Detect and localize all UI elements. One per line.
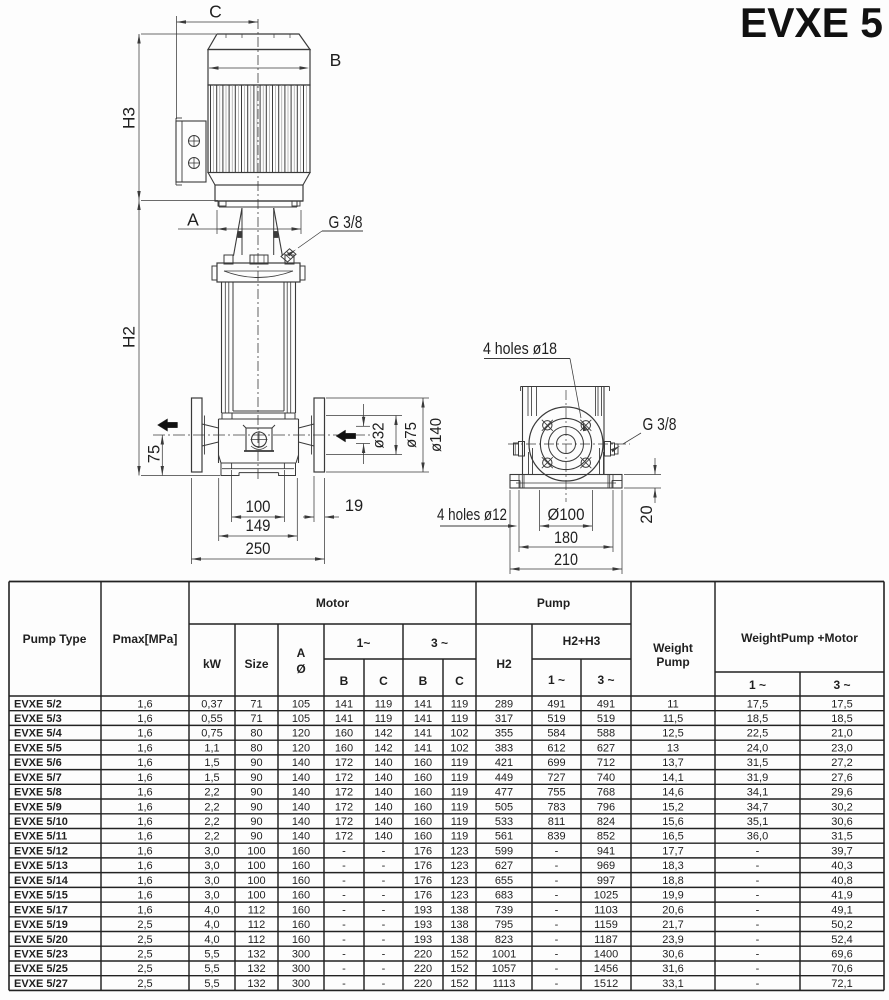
svg-text:160: 160 [335, 728, 353, 740]
svg-text:100: 100 [247, 890, 265, 902]
svg-text:289: 289 [495, 698, 513, 710]
svg-text:138: 138 [450, 919, 468, 931]
svg-text:141: 141 [414, 698, 432, 710]
svg-text:627: 627 [597, 742, 615, 754]
svg-text:16,5: 16,5 [662, 831, 683, 843]
svg-text:23,9: 23,9 [662, 934, 683, 946]
svg-text:383: 383 [495, 742, 513, 754]
svg-text:18,5: 18,5 [831, 713, 852, 725]
svg-text:969: 969 [597, 860, 615, 872]
svg-text:160: 160 [414, 757, 432, 769]
svg-text:132: 132 [247, 978, 265, 990]
svg-text:3,0: 3,0 [204, 875, 219, 887]
svg-text:30,2: 30,2 [831, 801, 852, 813]
svg-text:-: - [342, 875, 346, 887]
svg-text:-: - [756, 934, 760, 946]
svg-text:EVXE 5/4: EVXE 5/4 [14, 728, 63, 740]
svg-text:132: 132 [247, 963, 265, 975]
svg-text:80: 80 [250, 742, 262, 754]
svg-text:3 ~: 3 ~ [833, 678, 850, 692]
svg-text:1103: 1103 [594, 904, 618, 916]
svg-text:ø32: ø32 [371, 422, 388, 448]
svg-text:1,6: 1,6 [137, 742, 152, 754]
svg-text:-: - [382, 904, 386, 916]
svg-text:EVXE 5/7: EVXE 5/7 [14, 772, 62, 784]
svg-text:17,5: 17,5 [831, 698, 852, 710]
svg-text:141: 141 [335, 713, 353, 725]
svg-text:18,8: 18,8 [662, 875, 683, 887]
svg-text:WeightPump +Motor: WeightPump +Motor [741, 631, 858, 645]
svg-text:176: 176 [414, 846, 432, 858]
svg-text:-: - [555, 963, 559, 975]
svg-text:-: - [342, 904, 346, 916]
svg-text:220: 220 [414, 963, 432, 975]
svg-text:533: 533 [495, 816, 513, 828]
svg-text:0,55: 0,55 [201, 713, 222, 725]
svg-text:Ø100: Ø100 [548, 506, 585, 524]
svg-text:69,6: 69,6 [831, 949, 852, 961]
svg-text:-: - [756, 963, 760, 975]
svg-text:90: 90 [250, 831, 262, 843]
svg-text:477: 477 [495, 787, 513, 799]
svg-text:123: 123 [450, 875, 468, 887]
svg-text:-: - [342, 934, 346, 946]
svg-text:4,0: 4,0 [204, 919, 219, 931]
svg-text:71: 71 [250, 713, 262, 725]
svg-text:EVXE 5/19: EVXE 5/19 [14, 919, 68, 931]
svg-text:EVXE 5/25: EVXE 5/25 [14, 963, 68, 975]
svg-text:160: 160 [335, 742, 353, 754]
svg-text:123: 123 [450, 846, 468, 858]
svg-text:90: 90 [250, 816, 262, 828]
svg-text:2,5: 2,5 [137, 934, 152, 946]
svg-text:1113: 1113 [493, 978, 516, 990]
svg-text:123: 123 [450, 860, 468, 872]
svg-text:13,7: 13,7 [662, 757, 683, 769]
svg-text:1,6: 1,6 [137, 787, 152, 799]
svg-text:52,4: 52,4 [831, 934, 852, 946]
svg-text:1,6: 1,6 [137, 860, 152, 872]
svg-text:-: - [555, 949, 559, 961]
svg-text:40,8: 40,8 [831, 875, 852, 887]
svg-text:180: 180 [554, 529, 578, 547]
svg-text:141: 141 [335, 698, 353, 710]
svg-text:EVXE 5: EVXE 5 [740, 0, 883, 46]
svg-text:-: - [382, 860, 386, 872]
svg-text:31,9: 31,9 [747, 772, 768, 784]
svg-text:11,5: 11,5 [663, 713, 684, 725]
svg-text:29,6: 29,6 [831, 787, 852, 799]
svg-text:1,6: 1,6 [137, 904, 152, 916]
svg-text:EVXE 5/23: EVXE 5/23 [14, 949, 68, 961]
svg-text:584: 584 [547, 728, 565, 740]
svg-text:ø140: ø140 [428, 418, 445, 452]
svg-text:-: - [555, 860, 559, 872]
svg-text:30,6: 30,6 [662, 949, 683, 961]
svg-text:783: 783 [547, 801, 565, 813]
svg-text:21,0: 21,0 [831, 728, 852, 740]
svg-text:1,6: 1,6 [137, 890, 152, 902]
svg-text:21,7: 21,7 [662, 919, 683, 931]
svg-text:160: 160 [292, 890, 310, 902]
svg-text:Pmax[MPa]: Pmax[MPa] [113, 632, 178, 646]
svg-text:160: 160 [414, 801, 432, 813]
svg-text:EVXE 5/5: EVXE 5/5 [14, 742, 62, 754]
svg-text:141: 141 [414, 728, 432, 740]
svg-text:739: 739 [495, 904, 513, 916]
svg-text:-: - [555, 919, 559, 931]
svg-text:1400: 1400 [594, 949, 618, 961]
svg-text:-: - [756, 890, 760, 902]
svg-text:B: B [340, 674, 349, 688]
svg-text:210: 210 [554, 551, 578, 569]
svg-text:3 ~: 3 ~ [431, 636, 448, 650]
svg-text:22,5: 22,5 [747, 728, 768, 740]
svg-text:11: 11 [667, 698, 678, 710]
svg-text:-: - [555, 875, 559, 887]
svg-text:141: 141 [414, 742, 432, 754]
svg-text:1187: 1187 [594, 934, 618, 946]
svg-text:4 holes ø12: 4 holes ø12 [437, 506, 507, 524]
svg-text:-: - [555, 978, 559, 990]
svg-text:Weight: Weight [653, 641, 693, 655]
svg-text:1057: 1057 [492, 963, 516, 975]
svg-text:A: A [297, 646, 306, 660]
svg-text:EVXE 5/6: EVXE 5/6 [14, 757, 62, 769]
svg-text:14,1: 14,1 [662, 772, 683, 784]
svg-text:100: 100 [246, 498, 271, 516]
svg-text:142: 142 [374, 742, 392, 754]
svg-text:120: 120 [292, 742, 310, 754]
svg-text:75: 75 [146, 445, 164, 463]
svg-text:5,5: 5,5 [204, 963, 219, 975]
svg-text:EVXE 5/11: EVXE 5/11 [14, 831, 67, 843]
svg-text:300: 300 [292, 949, 310, 961]
svg-text:140: 140 [292, 816, 310, 828]
svg-text:Pump: Pump [537, 596, 570, 610]
svg-text:-: - [342, 890, 346, 902]
svg-text:-: - [342, 963, 346, 975]
svg-text:160: 160 [292, 934, 310, 946]
svg-text:152: 152 [450, 949, 468, 961]
svg-text:112: 112 [248, 934, 266, 946]
svg-text:EVXE 5/12: EVXE 5/12 [14, 846, 68, 858]
svg-text:Ø: Ø [296, 662, 305, 676]
svg-text:-: - [382, 978, 386, 990]
svg-text:250: 250 [246, 540, 271, 558]
svg-text:3,0: 3,0 [204, 890, 219, 902]
svg-text:71: 71 [250, 698, 262, 710]
svg-text:0,75: 0,75 [201, 728, 222, 740]
svg-text:119: 119 [451, 801, 469, 813]
svg-text:140: 140 [374, 787, 392, 799]
svg-text:B: B [330, 50, 342, 70]
svg-text:683: 683 [495, 890, 513, 902]
svg-text:997: 997 [597, 875, 615, 887]
svg-text:EVXE 5/13: EVXE 5/13 [14, 860, 68, 872]
svg-text:138: 138 [450, 904, 468, 916]
svg-text:449: 449 [495, 772, 513, 784]
svg-text:193: 193 [414, 919, 432, 931]
svg-text:100: 100 [247, 860, 265, 872]
svg-text:1,6: 1,6 [137, 801, 152, 813]
svg-text:2,5: 2,5 [137, 949, 152, 961]
svg-text:1001: 1001 [492, 949, 516, 961]
svg-text:3,0: 3,0 [204, 860, 219, 872]
svg-text:220: 220 [414, 978, 432, 990]
svg-text:712: 712 [597, 757, 615, 769]
svg-text:2,2: 2,2 [204, 816, 219, 828]
svg-text:-: - [342, 846, 346, 858]
svg-text:140: 140 [374, 801, 392, 813]
svg-text:1,6: 1,6 [137, 713, 152, 725]
svg-text:300: 300 [292, 963, 310, 975]
svg-text:491: 491 [547, 698, 565, 710]
svg-text:Pump: Pump [656, 655, 689, 669]
svg-text:140: 140 [292, 757, 310, 769]
svg-text:C: C [379, 674, 388, 688]
svg-text:140: 140 [374, 831, 392, 843]
svg-text:15,6: 15,6 [662, 816, 683, 828]
svg-text:5,5: 5,5 [204, 949, 219, 961]
svg-text:193: 193 [414, 904, 432, 916]
svg-text:519: 519 [597, 713, 615, 725]
svg-text:941: 941 [597, 846, 615, 858]
svg-text:172: 172 [335, 816, 353, 828]
svg-text:12,5: 12,5 [662, 728, 683, 740]
svg-text:34,1: 34,1 [747, 787, 768, 799]
svg-text:39,7: 39,7 [831, 846, 852, 858]
svg-text:-: - [382, 875, 386, 887]
svg-text:80: 80 [250, 728, 262, 740]
svg-text:EVXE 5/8: EVXE 5/8 [14, 787, 62, 799]
svg-text:-: - [756, 949, 760, 961]
svg-text:-: - [382, 919, 386, 931]
svg-text:-: - [382, 846, 386, 858]
svg-text:36,0: 36,0 [747, 831, 768, 843]
svg-text:421: 421 [495, 757, 513, 769]
svg-text:1,6: 1,6 [137, 846, 152, 858]
svg-text:0,37: 0,37 [201, 698, 222, 710]
svg-text:1,6: 1,6 [137, 757, 152, 769]
svg-text:27,6: 27,6 [831, 772, 852, 784]
svg-text:300: 300 [292, 978, 310, 990]
svg-text:17,5: 17,5 [747, 698, 768, 710]
svg-text:149: 149 [246, 517, 271, 535]
svg-text:4,0: 4,0 [204, 904, 219, 916]
svg-text:EVXE 5/14: EVXE 5/14 [14, 875, 69, 887]
svg-text:141: 141 [414, 713, 432, 725]
svg-text:kW: kW [203, 657, 222, 671]
svg-text:41,9: 41,9 [831, 890, 852, 902]
svg-text:34,7: 34,7 [747, 801, 768, 813]
svg-text:160: 160 [414, 831, 432, 843]
svg-text:18,3: 18,3 [662, 860, 683, 872]
svg-text:119: 119 [451, 816, 469, 828]
svg-text:20,6: 20,6 [662, 904, 683, 916]
svg-text:EVXE 5/9: EVXE 5/9 [14, 801, 62, 813]
svg-text:27,2: 27,2 [831, 757, 852, 769]
svg-text:-: - [756, 978, 760, 990]
svg-text:1,5: 1,5 [204, 757, 219, 769]
svg-text:19: 19 [345, 497, 363, 515]
svg-text:-: - [756, 846, 760, 858]
svg-text:699: 699 [547, 757, 565, 769]
svg-text:90: 90 [250, 757, 262, 769]
svg-text:-: - [342, 949, 346, 961]
svg-text:-: - [756, 919, 760, 931]
svg-text:796: 796 [597, 801, 615, 813]
svg-text:3,0: 3,0 [204, 846, 219, 858]
svg-text:727: 727 [547, 772, 565, 784]
svg-text:B: B [419, 674, 428, 688]
svg-text:1025: 1025 [594, 890, 618, 902]
svg-text:EVXE 5/3: EVXE 5/3 [14, 713, 62, 725]
svg-text:140: 140 [292, 772, 310, 784]
svg-text:-: - [382, 963, 386, 975]
svg-text:5,5: 5,5 [204, 978, 219, 990]
svg-text:119: 119 [451, 787, 469, 799]
svg-text:160: 160 [292, 919, 310, 931]
svg-text:40,3: 40,3 [831, 860, 852, 872]
svg-text:-: - [555, 846, 559, 858]
svg-text:755: 755 [547, 787, 565, 799]
svg-text:100: 100 [247, 846, 265, 858]
svg-text:70,6: 70,6 [831, 963, 852, 975]
svg-text:2,2: 2,2 [204, 801, 219, 813]
svg-text:612: 612 [547, 742, 565, 754]
svg-text:491: 491 [597, 698, 615, 710]
svg-text:1,6: 1,6 [137, 728, 152, 740]
svg-text:2,2: 2,2 [204, 787, 219, 799]
svg-text:33,1: 33,1 [662, 978, 683, 990]
svg-text:172: 172 [335, 831, 353, 843]
svg-text:-: - [342, 978, 346, 990]
svg-text:1,6: 1,6 [137, 831, 152, 843]
svg-text:119: 119 [451, 831, 469, 843]
svg-text:EVXE 5/27: EVXE 5/27 [14, 978, 68, 990]
svg-text:EVXE 5/2: EVXE 5/2 [14, 698, 62, 710]
svg-text:105: 105 [292, 698, 310, 710]
svg-text:599: 599 [495, 846, 513, 858]
svg-text:119: 119 [375, 713, 393, 725]
svg-text:1 ~: 1 ~ [749, 678, 766, 692]
svg-text:176: 176 [414, 875, 432, 887]
svg-text:220: 220 [414, 949, 432, 961]
svg-text:140: 140 [292, 801, 310, 813]
svg-text:132: 132 [247, 949, 265, 961]
svg-text:655: 655 [495, 875, 513, 887]
svg-text:839: 839 [547, 831, 565, 843]
svg-text:H3: H3 [120, 107, 139, 129]
svg-text:105: 105 [292, 713, 310, 725]
svg-text:140: 140 [374, 757, 392, 769]
svg-text:19,9: 19,9 [662, 890, 683, 902]
svg-text:1512: 1512 [594, 978, 618, 990]
svg-text:1,6: 1,6 [137, 772, 152, 784]
svg-text:140: 140 [292, 787, 310, 799]
svg-text:G 3/8: G 3/8 [329, 212, 363, 232]
svg-text:120: 120 [292, 728, 310, 740]
svg-text:119: 119 [451, 757, 469, 769]
svg-text:Size: Size [244, 657, 268, 671]
svg-text:172: 172 [335, 787, 353, 799]
svg-text:90: 90 [250, 787, 262, 799]
svg-text:EVXE 5/10: EVXE 5/10 [14, 816, 68, 828]
svg-text:EVXE 5/17: EVXE 5/17 [14, 904, 68, 916]
svg-text:588: 588 [597, 728, 615, 740]
svg-text:160: 160 [414, 772, 432, 784]
svg-text:140: 140 [374, 816, 392, 828]
svg-text:2,2: 2,2 [204, 831, 219, 843]
svg-text:H2+H3: H2+H3 [563, 634, 601, 648]
svg-text:519: 519 [547, 713, 565, 725]
svg-text:C: C [209, 2, 222, 22]
svg-text:172: 172 [335, 801, 353, 813]
svg-text:C: C [455, 674, 464, 688]
svg-text:-: - [382, 949, 386, 961]
svg-text:1159: 1159 [594, 919, 618, 931]
svg-text:152: 152 [450, 963, 468, 975]
svg-text:49,1: 49,1 [831, 904, 852, 916]
svg-text:23,0: 23,0 [831, 742, 852, 754]
svg-text:-: - [555, 904, 559, 916]
svg-text:1~: 1~ [357, 636, 371, 650]
svg-text:50,2: 50,2 [831, 919, 852, 931]
svg-text:119: 119 [451, 772, 469, 784]
svg-text:20: 20 [638, 505, 656, 523]
svg-text:193: 193 [414, 934, 432, 946]
svg-text:768: 768 [597, 787, 615, 799]
svg-text:102: 102 [450, 742, 468, 754]
svg-text:852: 852 [597, 831, 615, 843]
svg-text:24,0: 24,0 [747, 742, 768, 754]
svg-text:561: 561 [495, 831, 513, 843]
svg-text:90: 90 [250, 772, 262, 784]
svg-text:-: - [382, 934, 386, 946]
svg-text:1,6: 1,6 [137, 816, 152, 828]
svg-text:ø75: ø75 [403, 422, 420, 448]
svg-text:H2: H2 [120, 326, 139, 348]
svg-text:-: - [756, 860, 760, 872]
svg-text:1 ~: 1 ~ [548, 673, 565, 687]
svg-text:EVXE 5/20: EVXE 5/20 [14, 934, 68, 946]
svg-text:17,7: 17,7 [662, 846, 683, 858]
svg-text:4,0: 4,0 [204, 934, 219, 946]
svg-text:119: 119 [451, 698, 469, 710]
svg-text:795: 795 [495, 919, 513, 931]
svg-text:505: 505 [495, 801, 513, 813]
svg-text:90: 90 [250, 801, 262, 813]
svg-text:172: 172 [335, 772, 353, 784]
svg-text:1,6: 1,6 [137, 875, 152, 887]
svg-text:31,5: 31,5 [747, 757, 768, 769]
svg-text:18,5: 18,5 [747, 713, 768, 725]
svg-text:160: 160 [414, 787, 432, 799]
svg-text:72,1: 72,1 [831, 978, 852, 990]
svg-text:15,2: 15,2 [662, 801, 683, 813]
svg-text:EVXE 5/15: EVXE 5/15 [14, 890, 68, 902]
svg-text:13: 13 [667, 742, 679, 754]
svg-text:740: 740 [597, 772, 615, 784]
svg-text:-: - [342, 919, 346, 931]
svg-text:119: 119 [375, 698, 393, 710]
svg-text:140: 140 [292, 831, 310, 843]
svg-text:-: - [555, 934, 559, 946]
svg-text:31,5: 31,5 [831, 831, 852, 843]
svg-text:160: 160 [414, 816, 432, 828]
svg-text:160: 160 [292, 875, 310, 887]
